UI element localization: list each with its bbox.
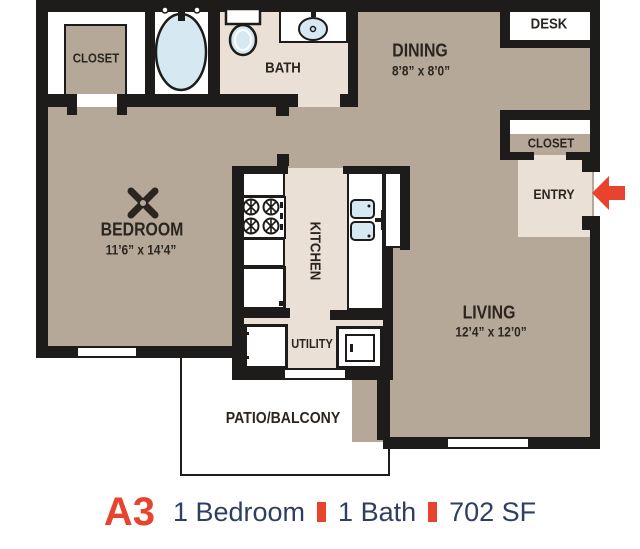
kitchen-upper-cabinet	[240, 170, 285, 197]
dining-label: DINING	[392, 41, 447, 62]
wall-segment	[232, 166, 288, 174]
entry-door-jamb	[582, 216, 600, 230]
wall-segment	[36, 346, 244, 358]
closet-door-jamb	[566, 152, 590, 160]
bath-door-threshold	[298, 94, 340, 107]
wall-segment	[500, 110, 510, 160]
entry-closet-label: CLOSET	[528, 136, 574, 151]
fridge-latch-tick	[279, 301, 284, 306]
bedroom-count: 1 Bedroom	[173, 497, 305, 528]
bath-sink-icon	[296, 8, 334, 42]
utility-label: UTILITY	[291, 337, 333, 351]
door-jamb	[117, 107, 127, 115]
wall-segment	[400, 166, 410, 250]
living-label: LIVING	[463, 303, 516, 324]
living-window	[446, 437, 530, 449]
kitchen-label: KITCHEN	[307, 222, 324, 281]
toilet-icon	[220, 6, 266, 60]
bath-door-jamb	[276, 107, 289, 116]
wall-segment	[340, 94, 358, 107]
bedroom-label: BEDROOM	[101, 220, 184, 241]
living-dimensions: 12’4” x 12’0”	[455, 325, 526, 340]
closet-door-jamb	[510, 152, 534, 160]
separator-icon	[317, 502, 326, 522]
washer-hinge-tick	[243, 356, 249, 359]
wall-segment	[590, 0, 600, 172]
patio-label: PATIO/BALCONY	[226, 410, 340, 428]
entry-door-jamb	[582, 160, 600, 172]
hallway-floor	[236, 100, 356, 168]
dryer-latch-tick	[350, 344, 353, 352]
wall-segment	[36, 94, 77, 107]
floor-plan: CLOSET BATH DINING 8’8” x 8’0” DESK CLOS…	[0, 0, 640, 549]
bedroom-closet-door-opening	[77, 94, 117, 107]
entry-closet-shelf	[510, 120, 590, 134]
wall-segment	[330, 310, 393, 320]
separator-icon	[428, 502, 437, 522]
ceiling-fan-icon	[124, 184, 162, 222]
kitchen-counter	[240, 238, 285, 267]
washer	[244, 324, 288, 369]
kitchen-sink-icon	[348, 197, 388, 245]
door-jamb	[67, 107, 77, 115]
washer-hinge-tick	[243, 332, 249, 335]
entry-arrow-icon	[591, 174, 627, 212]
wall-segment	[590, 216, 600, 449]
plan-caption: A3 1 Bedroom 1 Bath 702 SF	[0, 484, 640, 540]
bedroom-window	[76, 346, 138, 358]
entry-label: ENTRY	[533, 186, 574, 202]
patio-sliding-door	[283, 368, 347, 380]
stove-burners-icon	[241, 198, 283, 236]
wall-segment	[508, 40, 592, 48]
kitchen-door-jamb	[277, 154, 289, 166]
bath-count: 1 Bath	[338, 497, 416, 528]
bedroom-dimensions: 11’6” x 14’4”	[106, 243, 177, 258]
bath-label: BATH	[265, 60, 301, 77]
wall-segment	[500, 110, 592, 120]
wall-segment	[36, 0, 48, 358]
bathtub-icon	[152, 4, 212, 99]
square-footage: 702 SF	[449, 497, 536, 528]
desk-label: DESK	[531, 16, 568, 33]
dining-dimensions: 8’8” x 8’0”	[392, 64, 450, 79]
wall-segment	[348, 0, 358, 104]
wall-segment	[232, 308, 290, 318]
closet-top-left-label: CLOSET	[73, 51, 119, 66]
plan-code: A3	[104, 490, 155, 535]
wall-segment	[377, 378, 390, 440]
